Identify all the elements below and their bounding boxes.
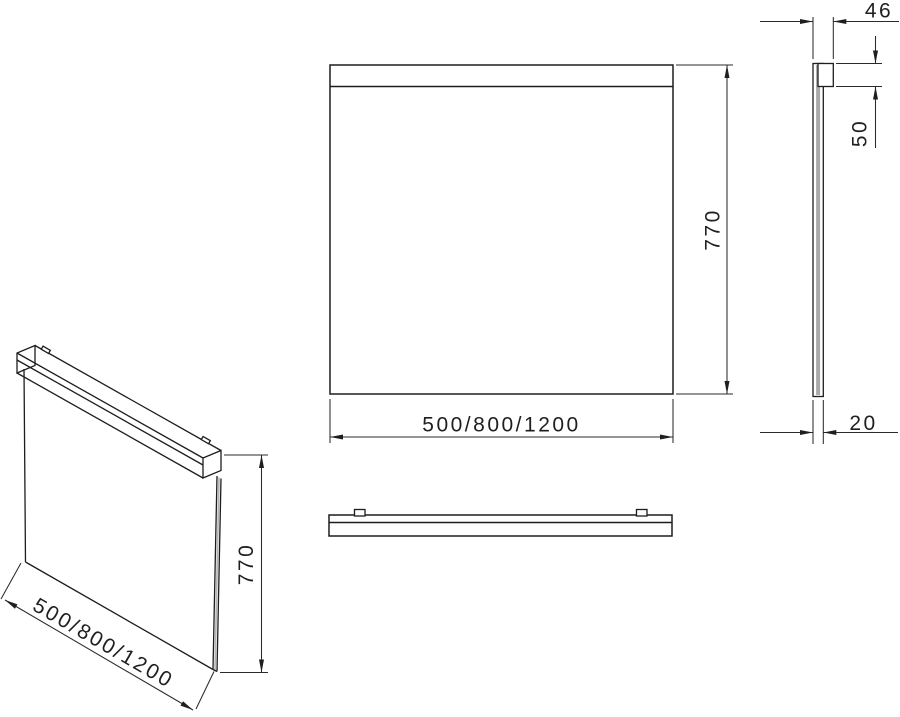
thickness-dimension: 20	[760, 400, 898, 444]
iso-height-label: 770	[235, 543, 258, 586]
front-height-label: 770	[702, 208, 725, 251]
bar-back-top-edge	[35, 346, 221, 451]
mirror-front-outline	[330, 65, 673, 394]
extension-line	[196, 672, 214, 710]
mirror-technical-drawing: 770 500/800/1200 46 50	[0, 0, 900, 717]
light-height-dimension: 50	[836, 36, 882, 148]
panel-plan-outline	[329, 515, 672, 536]
bracket-tab-left	[41, 346, 50, 353]
plan-view	[329, 510, 672, 537]
thickness-label: 20	[849, 412, 877, 435]
bar-right-end-cap	[203, 451, 221, 479]
front-height-dimension: 770	[676, 65, 733, 394]
dimension-line	[5, 600, 193, 710]
light-fixture-side	[818, 64, 833, 87]
depth-dimension: 46	[760, 0, 899, 59]
side-view: 46 50 20	[760, 0, 899, 444]
depth-label: 46	[865, 0, 893, 23]
iso-height-dimension: 770	[220, 455, 268, 673]
mounting-bracket-left	[355, 510, 366, 517]
glass-edge	[816, 65, 820, 395]
bar-front-groove-line	[17, 360, 203, 465]
iso-width-dimension: 500/800/1200	[1, 563, 214, 710]
isometric-view: 770 500/800/1200	[1, 346, 268, 711]
bracket-tab-right	[201, 436, 210, 443]
light-height-label: 50	[849, 119, 872, 147]
mounting-bracket-right	[637, 510, 648, 517]
bar-front-bottom-edge	[17, 373, 203, 478]
front-view: 770 500/800/1200	[330, 65, 733, 443]
bar-front-top-edge	[17, 353, 203, 458]
front-width-label: 500/800/1200	[422, 414, 580, 437]
technical-drawing-page: 770 500/800/1200 46 50	[0, 0, 900, 717]
iso-width-label: 500/800/1200	[29, 594, 178, 693]
panel-left-edge	[24, 369, 26, 562]
front-width-dimension: 500/800/1200	[330, 399, 673, 443]
extension-line	[1, 563, 21, 599]
